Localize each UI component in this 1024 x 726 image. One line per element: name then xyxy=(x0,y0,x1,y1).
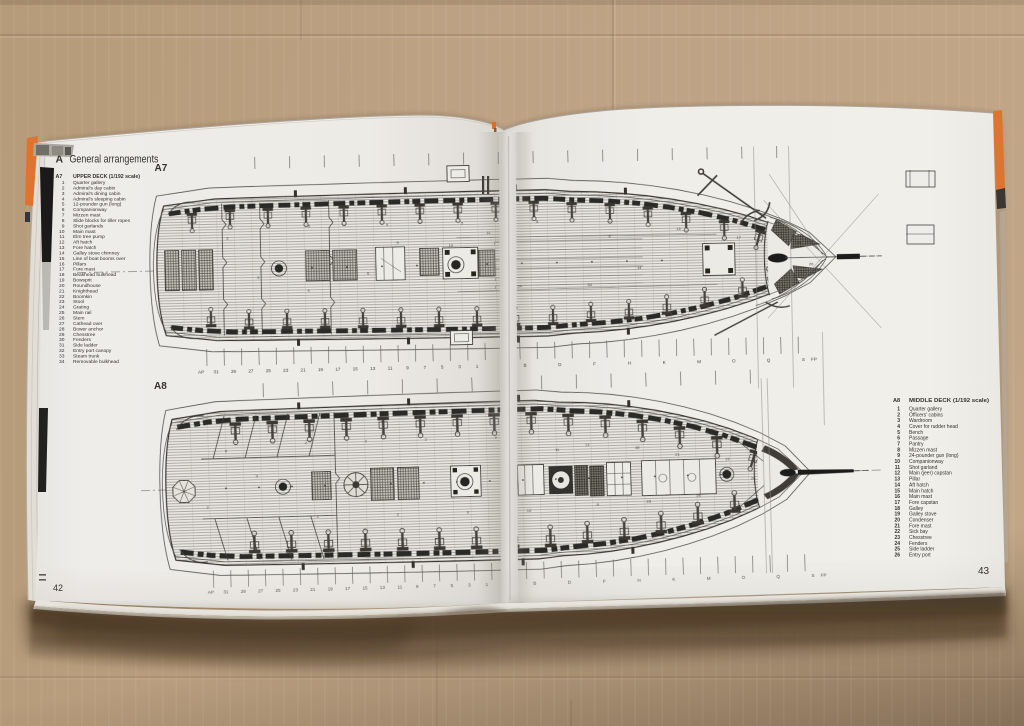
svg-text:H: H xyxy=(628,361,631,366)
svg-text:11: 11 xyxy=(388,366,393,371)
svg-text:F: F xyxy=(593,361,596,366)
svg-text:15: 15 xyxy=(353,366,359,371)
svg-text:31: 31 xyxy=(59,343,65,349)
svg-text:24: 24 xyxy=(59,305,65,311)
svg-text:A8: A8 xyxy=(154,381,167,392)
svg-text:5: 5 xyxy=(62,202,65,208)
svg-text:Steam trunk: Steam trunk xyxy=(73,353,100,359)
svg-text:Removable bulkhead: Removable bulkhead xyxy=(73,359,119,365)
svg-text:19: 19 xyxy=(59,278,65,284)
svg-text:17: 17 xyxy=(59,267,65,273)
svg-text:S: S xyxy=(802,357,805,362)
svg-text:26: 26 xyxy=(894,553,900,559)
svg-text:2: 2 xyxy=(62,185,65,191)
svg-text:Galley stove chimney: Galley stove chimney xyxy=(73,250,120,256)
svg-text:Main mast: Main mast xyxy=(73,229,96,235)
svg-text:4: 4 xyxy=(62,196,65,202)
svg-text:Fore mast: Fore mast xyxy=(73,267,96,273)
svg-text:18: 18 xyxy=(59,272,65,278)
svg-text:25: 25 xyxy=(266,368,272,373)
svg-text:21: 21 xyxy=(300,367,306,372)
svg-text:Q: Q xyxy=(767,358,771,363)
svg-text:13: 13 xyxy=(59,245,65,251)
svg-text:20: 20 xyxy=(59,283,65,289)
svg-text:34: 34 xyxy=(59,359,65,365)
svg-text:Bower anchor: Bower anchor xyxy=(73,326,104,332)
svg-text:O: O xyxy=(732,358,736,363)
svg-text:Slide blocks for tiller ropes: Slide blocks for tiller ropes xyxy=(73,218,131,224)
svg-text:11: 11 xyxy=(59,234,64,240)
svg-text:6: 6 xyxy=(62,207,65,213)
svg-text:12: 12 xyxy=(59,240,65,246)
svg-text:AP: AP xyxy=(198,370,204,375)
svg-text:Elm tree pump: Elm tree pump xyxy=(73,234,105,240)
svg-text:8: 8 xyxy=(62,218,65,224)
svg-text:Admiral's dining cabin: Admiral's dining cabin xyxy=(73,191,121,197)
svg-text:Stool: Stool xyxy=(73,299,84,305)
svg-text:43: 43 xyxy=(978,566,990,577)
svg-text:Aft hatch: Aft hatch xyxy=(73,240,93,246)
svg-text:27: 27 xyxy=(59,321,65,327)
svg-text:13: 13 xyxy=(370,366,376,371)
svg-text:Main rail: Main rail xyxy=(73,310,91,316)
svg-text:M: M xyxy=(697,359,701,364)
svg-text:Fenders: Fenders xyxy=(73,337,91,343)
svg-text:Knighthead: Knighthead xyxy=(73,288,98,294)
svg-text:A7: A7 xyxy=(155,163,168,174)
svg-text:7: 7 xyxy=(62,213,65,219)
svg-text:FP: FP xyxy=(811,357,817,362)
svg-text:17: 17 xyxy=(335,367,341,372)
svg-text:Shot garlands: Shot garlands xyxy=(73,223,104,229)
svg-text:A7: A7 xyxy=(56,174,63,180)
svg-text:28: 28 xyxy=(59,326,65,332)
svg-text:Quarter gallery: Quarter gallery xyxy=(73,180,106,186)
svg-text:1: 1 xyxy=(62,180,65,186)
svg-text:Mizzen mast: Mizzen mast xyxy=(73,213,101,219)
svg-text:29: 29 xyxy=(231,369,237,374)
svg-text:22: 22 xyxy=(59,294,65,300)
svg-text:Entry port: Entry port xyxy=(909,553,931,559)
svg-text:Chesstree: Chesstree xyxy=(73,332,96,338)
svg-text:A: A xyxy=(56,154,64,166)
svg-text:Side ladder: Side ladder xyxy=(73,343,98,349)
svg-text:23: 23 xyxy=(283,368,289,373)
svg-text:Beakhead bulkhead: Beakhead bulkhead xyxy=(73,272,117,278)
svg-text:Grating: Grating xyxy=(73,305,89,311)
svg-text:Bowsprit: Bowsprit xyxy=(73,278,92,284)
svg-text:27: 27 xyxy=(248,368,254,373)
svg-text:26: 26 xyxy=(59,316,65,322)
svg-text:16: 16 xyxy=(59,261,65,267)
svg-text:33: 33 xyxy=(59,353,65,359)
svg-text:25: 25 xyxy=(59,310,65,316)
svg-text:3: 3 xyxy=(62,191,65,197)
svg-text:Pillars: Pillars xyxy=(73,261,87,267)
svg-text:Companionway: Companionway xyxy=(73,207,107,213)
svg-text:Roundhouse: Roundhouse xyxy=(73,283,101,289)
svg-text:10: 10 xyxy=(59,229,65,235)
svg-text:23: 23 xyxy=(59,299,65,305)
svg-text:Stem: Stem xyxy=(73,316,84,322)
svg-text:31: 31 xyxy=(214,369,220,374)
svg-text:32: 32 xyxy=(59,348,65,354)
svg-text:Fore hatch: Fore hatch xyxy=(73,245,97,251)
svg-text:15: 15 xyxy=(59,256,65,262)
svg-text:Admiral's day cabin: Admiral's day cabin xyxy=(73,185,116,191)
svg-text:General arrangements: General arrangements xyxy=(70,154,159,166)
svg-text:Entry port canopy: Entry port canopy xyxy=(73,348,112,354)
svg-text:A8: A8 xyxy=(893,398,900,404)
svg-text:Boomkin: Boomkin xyxy=(73,294,92,300)
svg-text:30: 30 xyxy=(59,337,65,343)
svg-text:29: 29 xyxy=(59,332,65,338)
svg-text:9: 9 xyxy=(62,223,65,229)
svg-text:42: 42 xyxy=(53,583,63,593)
svg-text:Admiral's sleeping cabin: Admiral's sleeping cabin xyxy=(73,196,126,202)
svg-text:21: 21 xyxy=(59,288,65,294)
svg-text:14: 14 xyxy=(59,250,65,256)
svg-text:UPPER DECK (1/192 scale): UPPER DECK (1/192 scale) xyxy=(73,174,140,180)
svg-text:12-pounder gun (long): 12-pounder gun (long) xyxy=(73,202,122,208)
svg-text:Cathead over: Cathead over xyxy=(73,321,103,327)
svg-text:Line of boat booms over: Line of boat booms over xyxy=(73,256,126,262)
svg-text:19: 19 xyxy=(318,367,324,372)
svg-text:MIDDLE DECK (1/192 scale): MIDDLE DECK (1/192 scale) xyxy=(909,398,989,404)
